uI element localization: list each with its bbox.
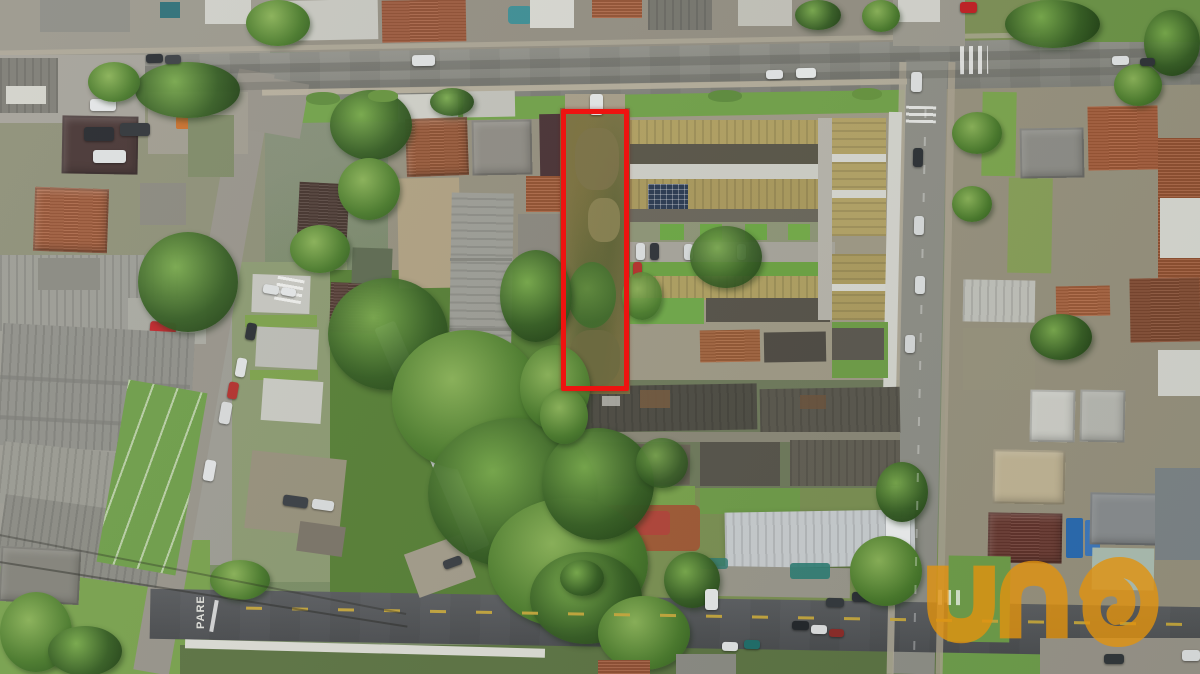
- car: [829, 629, 844, 637]
- lane: [818, 118, 832, 320]
- tree-canopy: [138, 232, 238, 332]
- patio-green: [788, 224, 810, 240]
- house-terracotta-cluster: [1087, 105, 1158, 170]
- house-terracotta: [405, 117, 469, 177]
- roof-white: [6, 86, 46, 104]
- tree-canopy: [1030, 314, 1092, 360]
- car: [1140, 58, 1155, 66]
- house-terracotta: [382, 0, 467, 43]
- roof-gray: [40, 0, 130, 32]
- roof-gray-small: [140, 183, 186, 225]
- tree-canopy: [338, 158, 400, 220]
- house-gable-white: [1030, 390, 1076, 443]
- hedge: [306, 92, 340, 105]
- car: [905, 335, 915, 353]
- tree-canopy: [560, 560, 604, 596]
- tree-canopy: [1144, 10, 1200, 76]
- watermark: una: [918, 556, 1166, 648]
- lawn: [1007, 178, 1053, 274]
- roof-gray-bit: [676, 654, 736, 674]
- shed-row-west: [188, 115, 234, 177]
- house-orange: [700, 329, 761, 362]
- house-dark: [832, 328, 884, 360]
- letter-u: [938, 566, 984, 631]
- car: [722, 642, 738, 651]
- roof-slab-rows: [963, 279, 1036, 322]
- pool-teal: [508, 6, 532, 24]
- tree-canopy: [542, 428, 654, 540]
- house-gray: [472, 119, 533, 175]
- roof-light: [738, 0, 792, 26]
- crosswalk: [960, 46, 988, 74]
- tree-canopy: [330, 90, 412, 160]
- car: [636, 243, 645, 260]
- roof-seam: [450, 258, 512, 261]
- tree-canopy: [1005, 0, 1100, 48]
- roof-white: [898, 0, 940, 22]
- tree-canopy: [135, 62, 240, 118]
- tree-canopy: [862, 0, 900, 32]
- tree-canopy: [88, 62, 140, 102]
- driveway: [963, 328, 1035, 390]
- patio-green: [660, 224, 684, 240]
- letter-n: [1011, 573, 1057, 638]
- tree-canopy: [540, 388, 588, 444]
- car: [811, 625, 827, 634]
- house-darkorange: [1129, 277, 1200, 342]
- car: [93, 150, 126, 163]
- container-teal: [160, 2, 180, 18]
- tree-canopy: [636, 438, 688, 488]
- townhouse-row-roof: [630, 120, 830, 144]
- roof-white-square: [1160, 198, 1200, 258]
- tree-canopy: [48, 626, 122, 674]
- house-white: [530, 0, 574, 28]
- tree-canopy: [795, 0, 841, 30]
- car: [84, 127, 114, 141]
- road-marking-pare: PARE: [195, 597, 209, 629]
- tree-canopy: [290, 225, 350, 273]
- pipe-teal: [790, 563, 830, 579]
- car: [826, 598, 844, 607]
- car: [792, 621, 809, 630]
- car: [744, 640, 760, 649]
- car: [911, 72, 922, 92]
- car: [913, 148, 923, 167]
- van: [796, 68, 816, 78]
- rust-patch: [640, 390, 670, 408]
- car: [766, 70, 783, 79]
- apartment-block: [255, 326, 319, 369]
- townhouse-row-dark: [630, 144, 830, 164]
- letter-a: [1088, 568, 1149, 637]
- house-dark: [764, 331, 827, 362]
- apartment-block: [261, 378, 324, 424]
- townhouse-block-east: [832, 118, 886, 236]
- house-terracotta: [592, 0, 642, 18]
- car: [915, 276, 925, 294]
- roof-white-slab: [1158, 350, 1200, 396]
- house-gable-gray: [1080, 390, 1126, 443]
- truck-blue: [1066, 518, 1083, 558]
- house-orange: [1056, 286, 1111, 317]
- roof-grayblue: [1155, 468, 1200, 560]
- hedge: [708, 90, 742, 102]
- tree-canopy: [690, 226, 762, 288]
- car: [165, 55, 181, 64]
- van: [705, 589, 718, 610]
- tree-canopy: [430, 88, 474, 116]
- shed-small: [296, 521, 346, 557]
- car: [1112, 56, 1129, 65]
- townhouse-row-dark: [706, 298, 830, 322]
- townhouse-row-dark: [630, 209, 830, 222]
- roof-patch-white: [602, 396, 620, 406]
- hedge: [852, 88, 882, 100]
- watermark-logo-una: [918, 556, 1166, 648]
- lawn: [700, 488, 800, 514]
- tree-canopy: [246, 0, 310, 46]
- roof-gray-metal: [648, 0, 712, 30]
- highlight-outline: [561, 109, 629, 391]
- tree-canopy: [876, 462, 928, 522]
- house-terracotta: [33, 187, 109, 254]
- car: [1182, 650, 1200, 661]
- car: [120, 123, 150, 136]
- car: [1104, 654, 1124, 664]
- tree-canopy: [850, 536, 922, 606]
- aerial-photo: PARE una: [0, 0, 1200, 674]
- car: [146, 54, 163, 63]
- house-beige-hip: [993, 449, 1066, 504]
- rust-patch: [800, 395, 826, 409]
- walkway: [832, 154, 886, 162]
- house-gray-hip: [1020, 127, 1085, 178]
- car: [650, 243, 659, 260]
- roof-section-dark: [38, 258, 100, 290]
- walkway: [832, 190, 886, 198]
- walkway: [832, 284, 886, 291]
- car: [914, 216, 924, 235]
- crosswalk: [906, 106, 936, 124]
- hedge: [368, 90, 398, 102]
- tree-canopy: [952, 186, 992, 222]
- solar-panels: [648, 184, 688, 210]
- roof-white: [205, 0, 251, 24]
- car: [960, 2, 977, 13]
- old-roof: [700, 442, 780, 486]
- old-roof-row: [760, 387, 901, 435]
- tree-canopy: [1114, 64, 1162, 106]
- walkway: [630, 164, 830, 179]
- van: [412, 55, 435, 66]
- tree-canopy: [952, 112, 1002, 154]
- roof-orange-bit: [598, 660, 650, 674]
